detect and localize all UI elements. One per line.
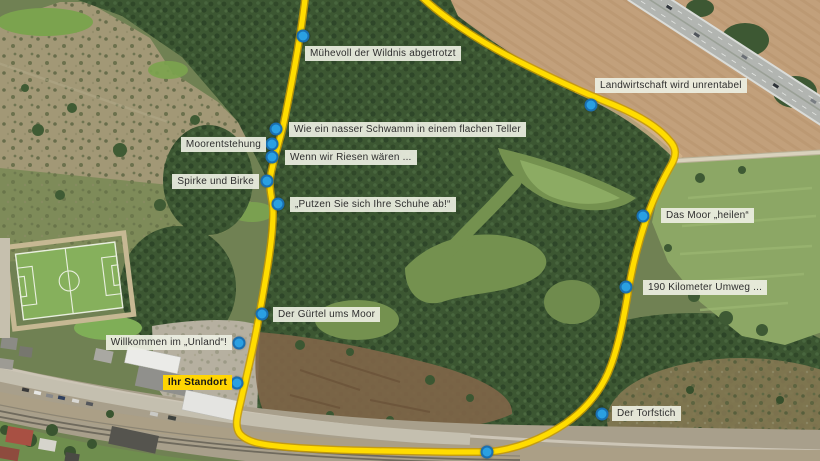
poi-label-standort[interactable]: Ihr Standort (163, 375, 232, 390)
poi-marker-willkommen[interactable] (233, 337, 246, 350)
poi-marker-putzen[interactable] (272, 198, 285, 211)
poi-marker-route-point[interactable] (481, 446, 494, 459)
poi-marker-landwirtschaft[interactable] (585, 99, 598, 112)
poi-marker-muehevoll[interactable] (297, 30, 310, 43)
poi-label-putzen[interactable]: „Putzen Sie sich Ihre Schuhe ab!“ (290, 197, 456, 212)
poi-marker-riesen[interactable] (266, 151, 279, 164)
poi-label-moorentstehung[interactable]: Moorentstehung (181, 137, 266, 152)
poi-label-umweg[interactable]: 190 Kilometer Umweg ... (643, 280, 767, 295)
poi-marker-spirke[interactable] (261, 175, 274, 188)
soccer-pitch (5, 233, 134, 329)
poi-label-heilen[interactable]: Das Moor „heilen“ (661, 208, 754, 223)
poi-marker-standort[interactable] (231, 377, 244, 390)
aerial-imagery (0, 0, 820, 461)
poi-label-torfstich[interactable]: Der Torfstich (612, 406, 681, 421)
poi-label-schwamm[interactable]: Wie ein nasser Schwamm in einem flachen … (289, 122, 526, 137)
poi-label-riesen[interactable]: Wenn wir Riesen wären ... (285, 150, 417, 165)
poi-label-spirke[interactable]: Spirke und Birke (172, 174, 259, 189)
poi-label-willkommen[interactable]: Willkommen im „Unland“! (106, 335, 232, 350)
poi-marker-guertel[interactable] (256, 308, 269, 321)
map-canvas: Mühevoll der Wildnis abgetrotzt Landwirt… (0, 0, 820, 461)
poi-label-landwirtschaft[interactable]: Landwirtschaft wird unrentabel (595, 78, 747, 93)
poi-marker-moorentstehung[interactable] (266, 138, 279, 151)
poi-label-muehevoll[interactable]: Mühevoll der Wildnis abgetrotzt (305, 46, 461, 61)
poi-marker-torfstich[interactable] (596, 408, 609, 421)
poi-marker-umweg[interactable] (620, 281, 633, 294)
poi-label-guertel[interactable]: Der Gürtel ums Moor (273, 307, 380, 322)
poi-marker-heilen[interactable] (637, 210, 650, 223)
poi-marker-schwamm[interactable] (270, 123, 283, 136)
